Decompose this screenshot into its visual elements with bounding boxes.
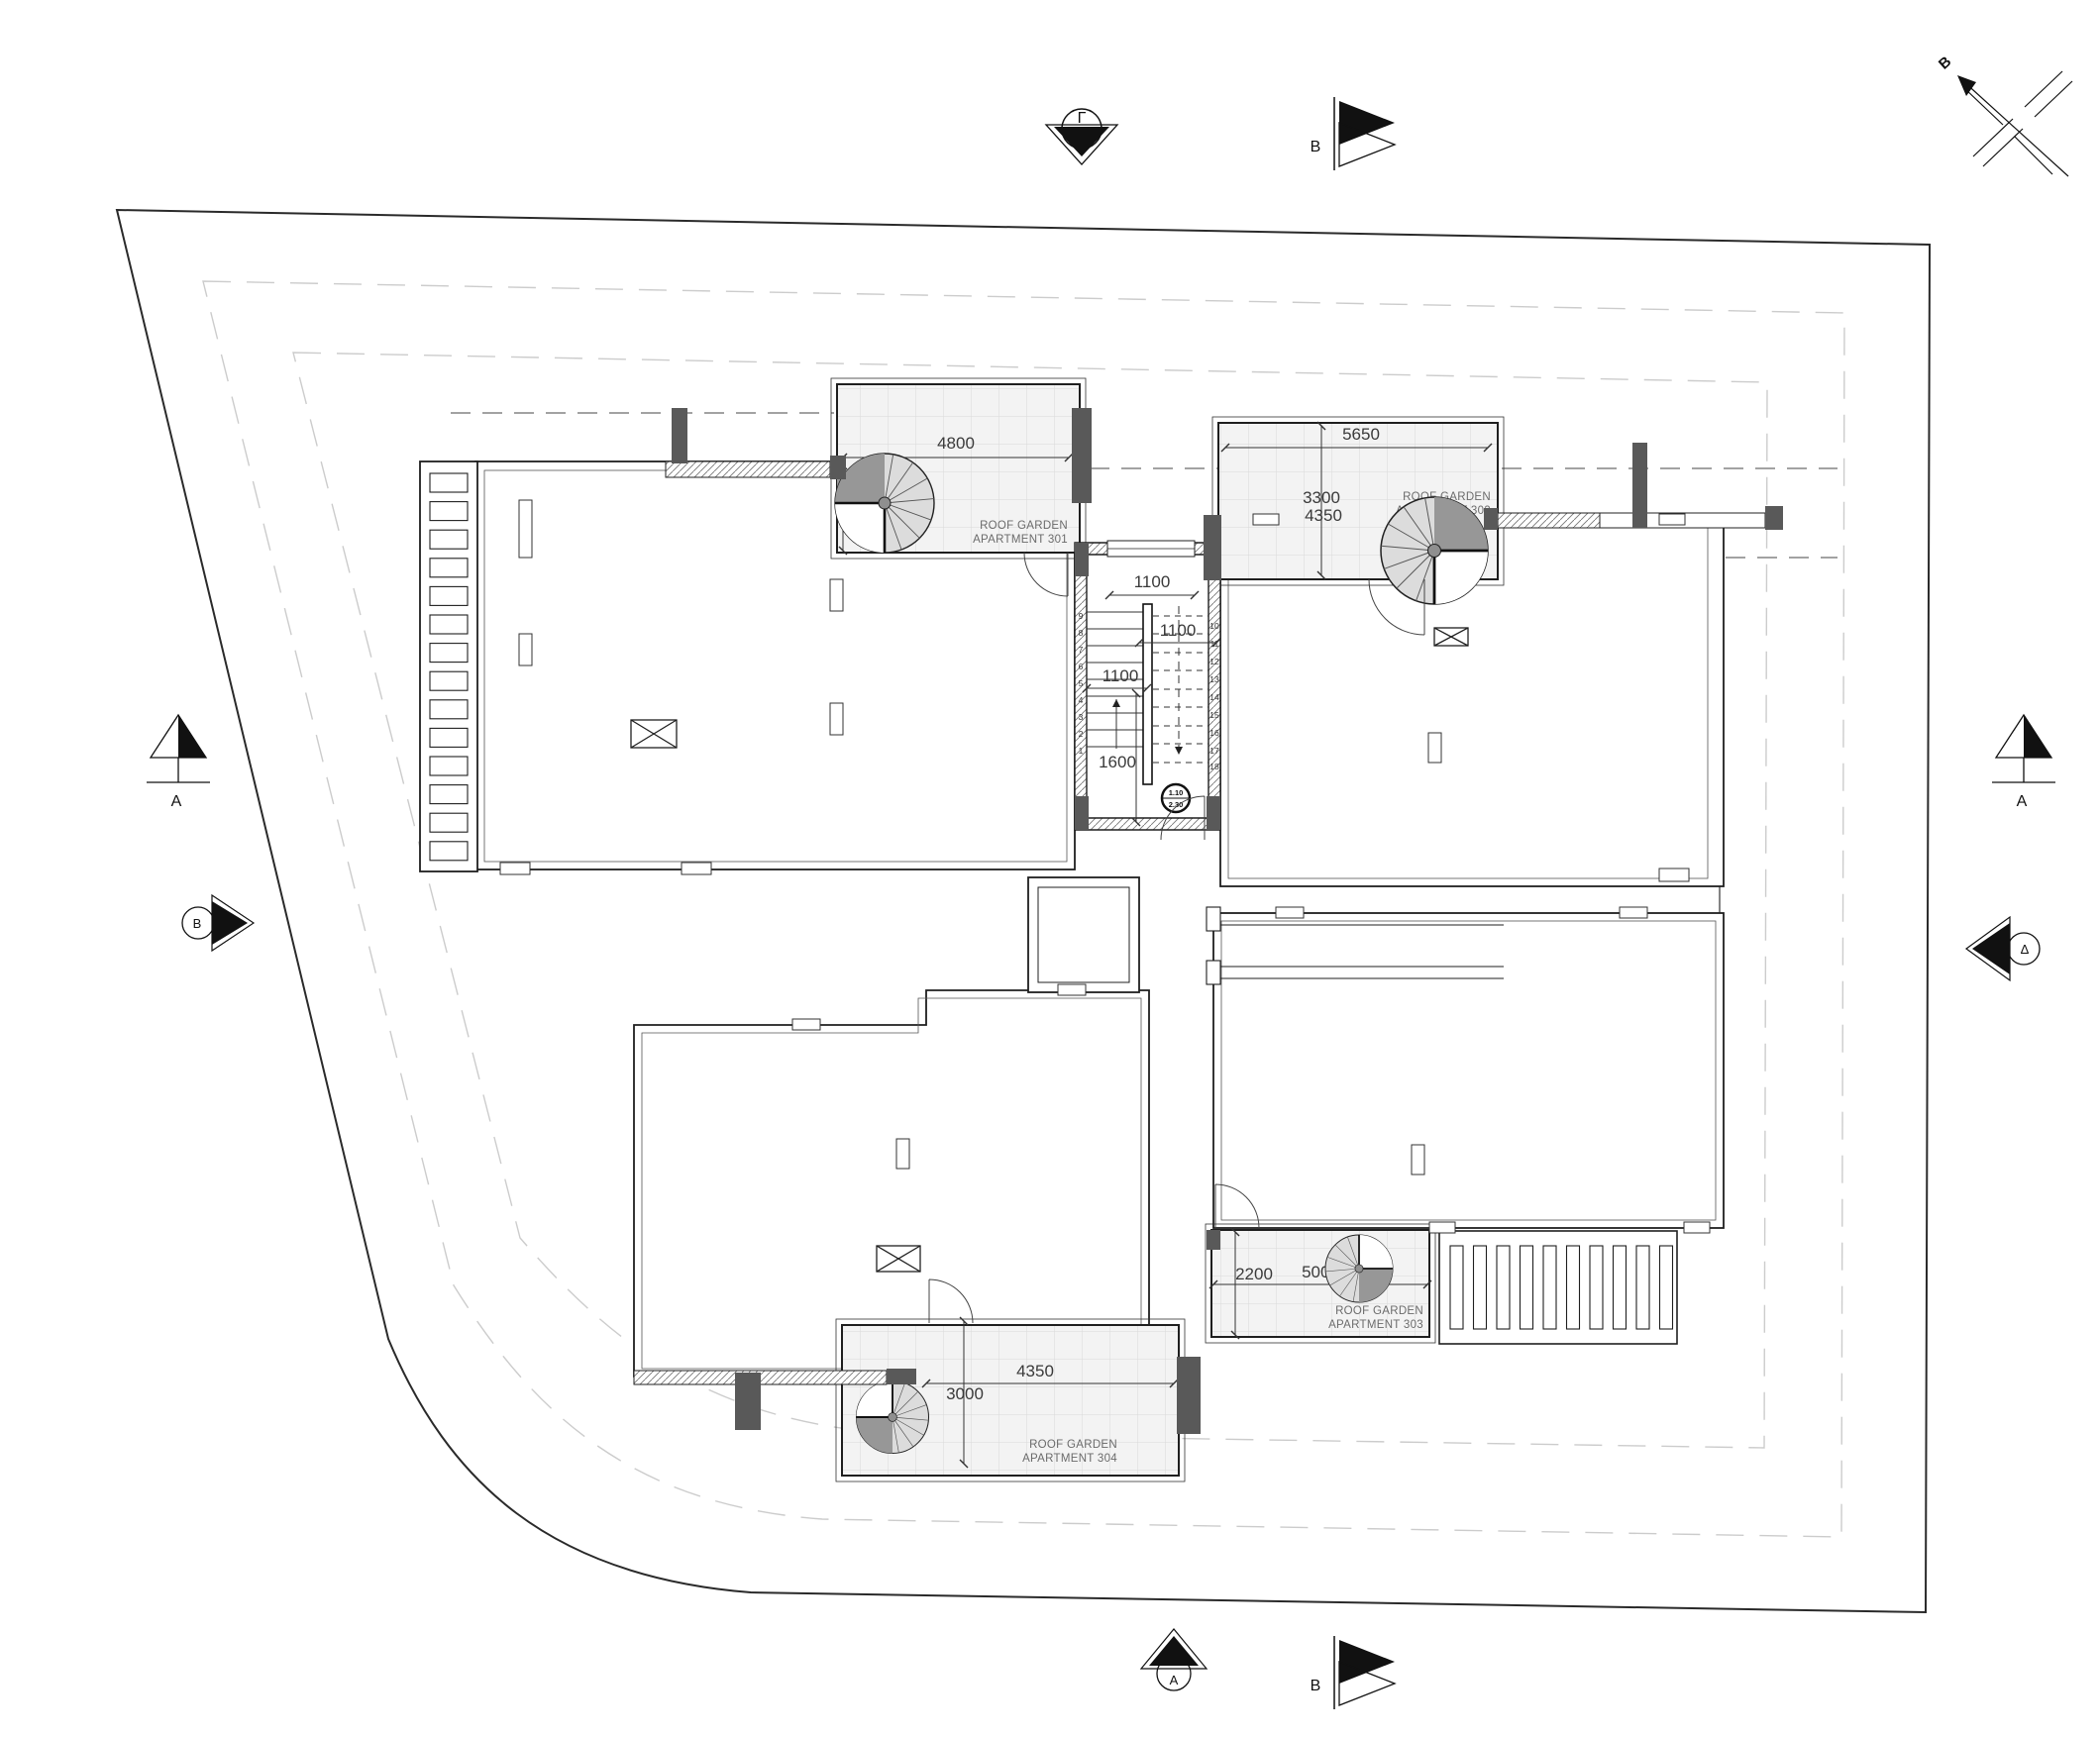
section-marker-right-a: A bbox=[1992, 715, 2055, 810]
floor-plan-page: 4800 3400 ROOF GARDEN APARTMENT 301 5650… bbox=[0, 0, 2100, 1737]
garden-301-label-2: APARTMENT 301 bbox=[973, 534, 1068, 546]
garden-303-label-2: APARTMENT 303 bbox=[1328, 1319, 1423, 1331]
garden-304-label-1: ROOF GARDEN bbox=[1029, 1439, 1117, 1451]
garden-301-label-1: ROOF GARDEN bbox=[980, 520, 1068, 532]
svg-text:8: 8 bbox=[1079, 628, 1084, 638]
dim-303-height: 2200 bbox=[1235, 1265, 1273, 1283]
section-marker-bottom-b: B bbox=[1311, 1636, 1395, 1709]
spiral-stair-301 bbox=[835, 454, 934, 553]
dim-304-height: 3000 bbox=[946, 1384, 984, 1403]
marker-top-gamma-label: Γ bbox=[1078, 110, 1087, 127]
svg-text:13: 13 bbox=[1209, 674, 1219, 684]
svg-text:12: 12 bbox=[1209, 657, 1219, 666]
garden-304-label-2: APARTMENT 304 bbox=[1022, 1453, 1117, 1465]
central-shaft bbox=[1028, 877, 1139, 992]
svg-text:10: 10 bbox=[1209, 621, 1219, 631]
svg-text:5: 5 bbox=[1079, 678, 1084, 688]
stair-dim-bottom: 1600 bbox=[1099, 753, 1136, 771]
stair-dim-top: 1100 bbox=[1134, 572, 1171, 591]
marker-bottom-a-label: A bbox=[1170, 1673, 1179, 1687]
section-marker-right-delta: Δ bbox=[1966, 917, 2040, 980]
stair-dim-left: 1100 bbox=[1102, 666, 1139, 685]
level-marker: 1.10 2.30 bbox=[1162, 784, 1190, 812]
skylight-x-box bbox=[631, 720, 677, 748]
marker-left-a-label: A bbox=[171, 793, 182, 810]
stair-dim-mid: 1100 bbox=[1160, 621, 1197, 640]
marker-right-a-label: A bbox=[2017, 793, 2028, 810]
marker-top-b-label: B bbox=[1311, 139, 1321, 155]
svg-text:3: 3 bbox=[1079, 712, 1084, 722]
section-marker-bottom-a: A bbox=[1141, 1629, 1207, 1690]
svg-text:14: 14 bbox=[1209, 692, 1219, 702]
north-arrow: B bbox=[1936, 53, 2072, 176]
spiral-stair-303 bbox=[1325, 1235, 1393, 1302]
svg-text:4: 4 bbox=[1079, 695, 1084, 705]
dim-302-width: 5650 bbox=[1342, 425, 1380, 444]
dim-301-width: 4800 bbox=[937, 434, 975, 453]
section-marker-top-b: B bbox=[1311, 97, 1395, 170]
dim-302-h2: 4350 bbox=[1305, 506, 1342, 525]
section-marker-left-a: A bbox=[147, 715, 210, 810]
svg-text:11: 11 bbox=[1210, 639, 1219, 649]
svg-text:2: 2 bbox=[1079, 729, 1084, 739]
section-marker-left-b: B bbox=[182, 895, 254, 951]
louvre-strip-left bbox=[420, 461, 477, 871]
lower-left-terrace bbox=[634, 990, 1149, 1377]
lower-right-terrace bbox=[1213, 913, 1724, 1228]
svg-text:16: 16 bbox=[1209, 728, 1219, 738]
skylight-x-box bbox=[877, 1246, 920, 1272]
north-label: B bbox=[1936, 53, 1955, 73]
roof-garden-303: 5000 2200 ROOF GARDEN APARTMENT 303 bbox=[1206, 1224, 1435, 1343]
skylight-x-box bbox=[1434, 628, 1468, 646]
section-marker-top-gamma: Γ bbox=[1046, 109, 1117, 164]
svg-text:1: 1 bbox=[1079, 746, 1084, 756]
roof-plan-drawing: 4800 3400 ROOF GARDEN APARTMENT 301 5650… bbox=[0, 0, 2100, 1737]
svg-text:17: 17 bbox=[1209, 746, 1219, 756]
svg-text:15: 15 bbox=[1209, 710, 1219, 720]
svg-text:6: 6 bbox=[1079, 662, 1084, 671]
level-lower: 2.30 bbox=[1169, 800, 1184, 809]
marker-right-delta-label: Δ bbox=[2021, 942, 2030, 957]
spiral-stair-304 bbox=[857, 1381, 929, 1454]
dim-302-h1: 3300 bbox=[1303, 488, 1340, 507]
pergola-bottom-right bbox=[1439, 1231, 1677, 1344]
stair-core: 1100 1100 1100 1600 1 2 3 4 5 6 7 8 9 10… bbox=[1075, 541, 1220, 830]
marker-bottom-b-label: B bbox=[1311, 1678, 1321, 1694]
svg-text:18: 18 bbox=[1209, 762, 1219, 771]
svg-text:7: 7 bbox=[1079, 645, 1084, 655]
spiral-stair-302 bbox=[1381, 497, 1488, 604]
level-upper: 1.10 bbox=[1169, 788, 1184, 797]
garden-303-label-1: ROOF GARDEN bbox=[1335, 1305, 1423, 1317]
marker-left-b-label: B bbox=[193, 916, 202, 931]
svg-text:9: 9 bbox=[1079, 611, 1084, 621]
dim-304-width: 4350 bbox=[1016, 1362, 1054, 1380]
